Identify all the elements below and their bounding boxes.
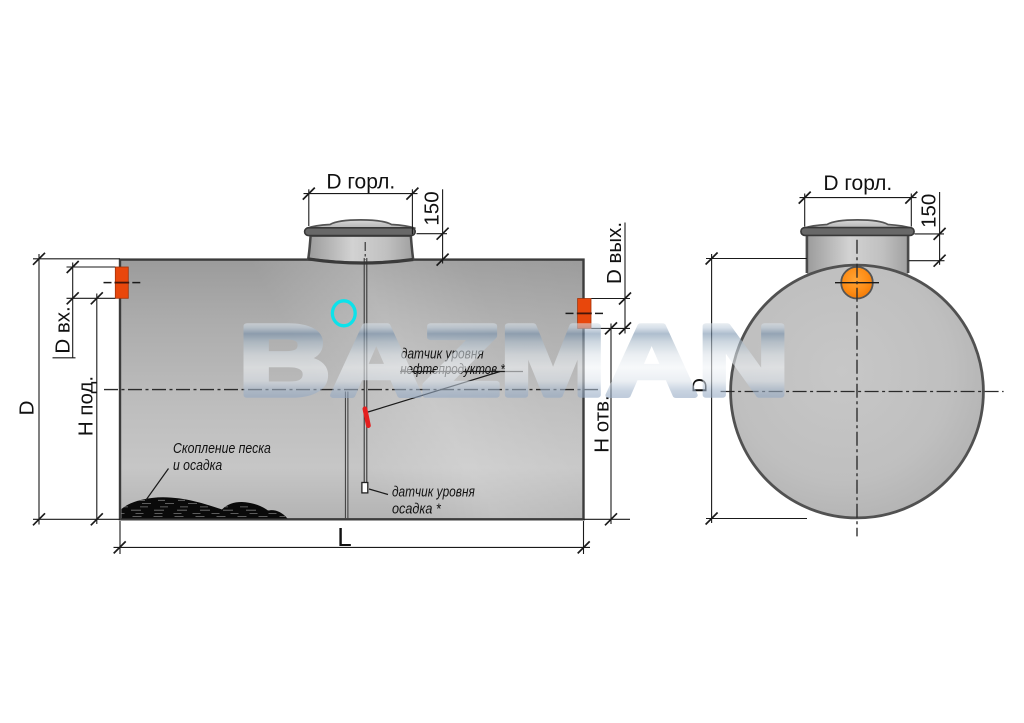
svg-text:BAZMAN: BAZMAN: [239, 305, 790, 417]
svg-text:D вых.: D вых.: [603, 222, 626, 284]
svg-text:H под.: H под.: [75, 376, 98, 436]
svg-text:осадка *: осадка *: [392, 501, 442, 518]
svg-text:датчик уровня: датчик уровня: [392, 484, 475, 501]
svg-text:150: 150: [421, 191, 444, 225]
svg-text:L: L: [337, 522, 351, 552]
svg-text:D горл.: D горл.: [326, 171, 395, 194]
svg-text:Скопление песка: Скопление песка: [173, 440, 271, 457]
svg-text:150: 150: [918, 194, 941, 228]
svg-text:и осадка: и осадка: [173, 457, 222, 474]
svg-text:D вх.: D вх.: [52, 306, 75, 353]
svg-text:D горл.: D горл.: [823, 172, 892, 195]
svg-text:D: D: [16, 401, 39, 416]
